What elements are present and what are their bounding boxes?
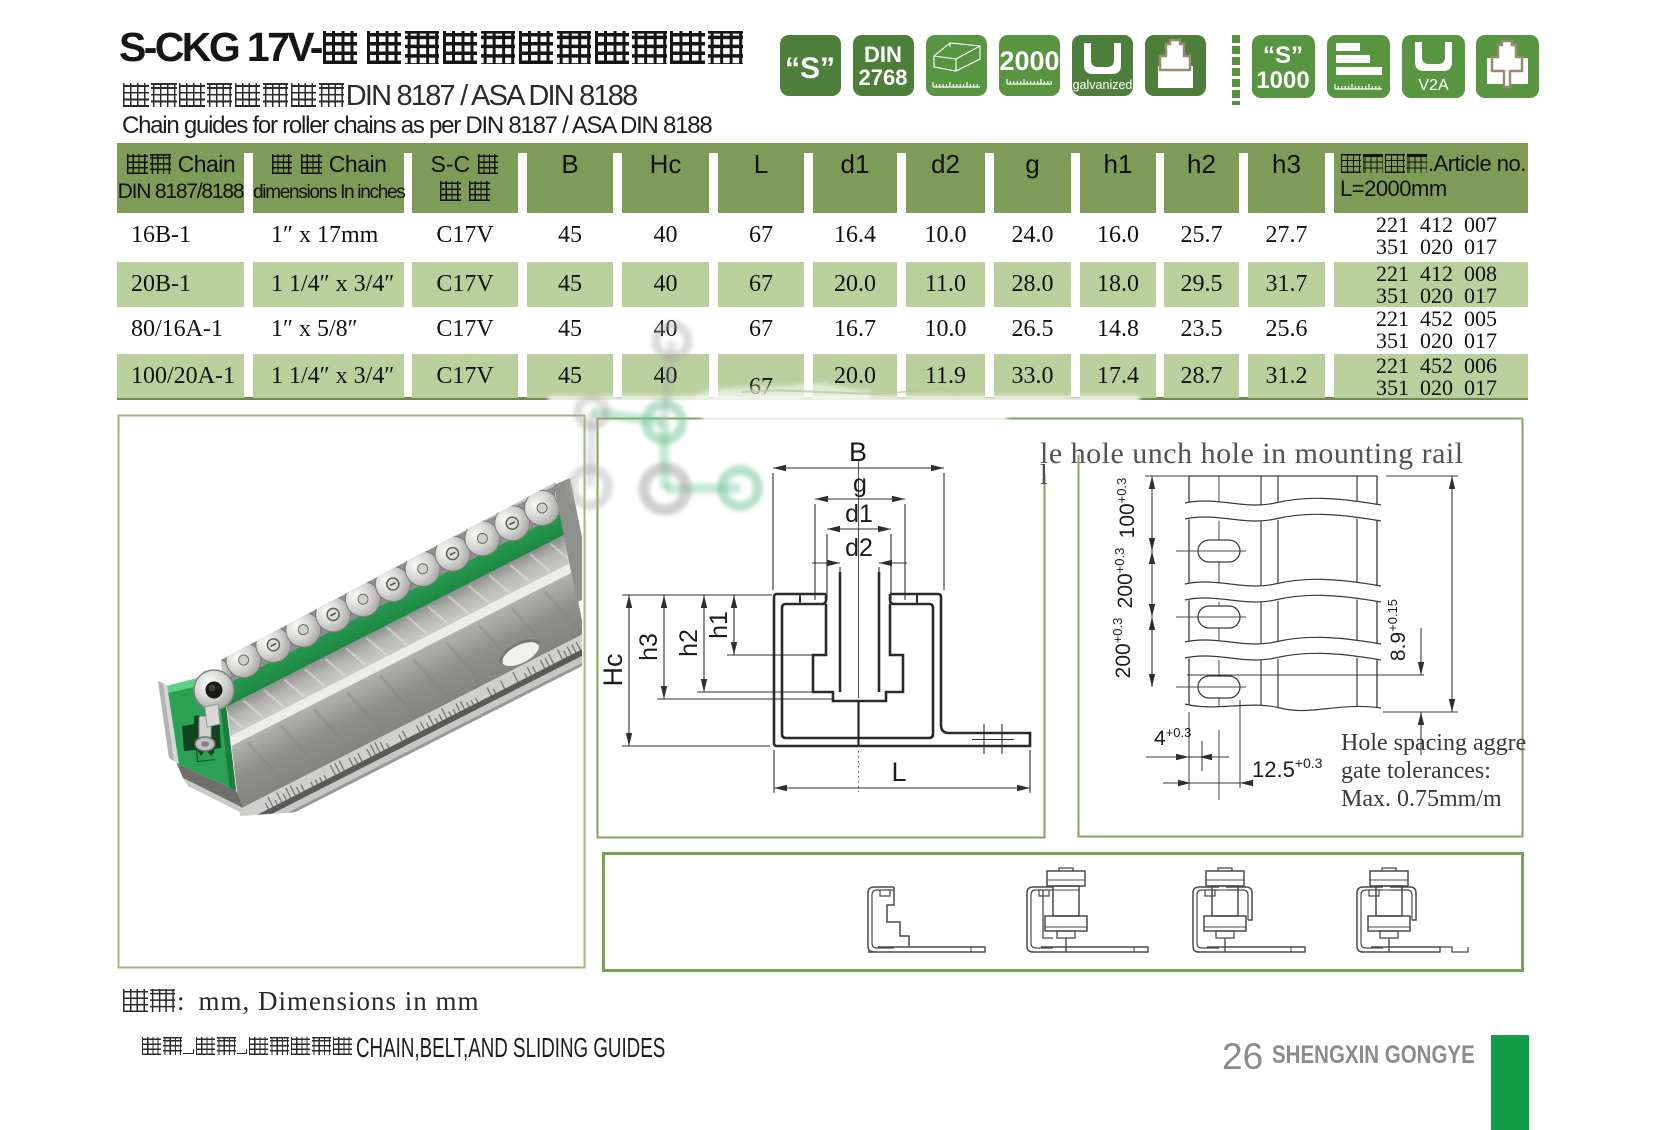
svg-text:g: g	[853, 470, 867, 498]
svg-text:h1: h1	[705, 611, 733, 639]
svg-text:1000: 1000	[1256, 67, 1309, 94]
svg-text:gate tolerances:: gate tolerances:	[1341, 758, 1491, 784]
svg-text:DIN: DIN	[864, 42, 902, 67]
svg-text:le hole unch hole in mounting: le hole unch hole in mounting rail	[1040, 437, 1464, 470]
svg-text:L: L	[891, 757, 906, 787]
svg-text:200+0.3: 200+0.3	[1112, 548, 1137, 609]
svg-text:V2A: V2A	[1418, 77, 1449, 94]
svg-text:l: l	[1040, 460, 1048, 491]
svg-text:2768: 2768	[859, 65, 908, 90]
svg-text:B: B	[849, 437, 867, 467]
svg-text:h2: h2	[675, 629, 703, 657]
svg-text:12.5+0.3: 12.5+0.3	[1252, 755, 1323, 782]
svg-text:“S”: “S”	[1263, 42, 1303, 69]
svg-text:“S”: “S”	[785, 52, 835, 85]
svg-text:Hc: Hc	[598, 654, 628, 687]
svg-text:d2: d2	[845, 534, 873, 562]
svg-text:Max. 0.75mm/m: Max. 0.75mm/m	[1341, 786, 1502, 812]
svg-text:2000: 2000	[999, 46, 1059, 76]
svg-text:8.9+0.15: 8.9+0.15	[1385, 599, 1410, 661]
svg-text:Hole spacing aggre: Hole spacing aggre	[1341, 730, 1526, 756]
svg-text:galvanized: galvanized	[1073, 78, 1133, 92]
svg-text:200+0.3: 200+0.3	[1110, 618, 1135, 679]
svg-text:4+0.3: 4+0.3	[1154, 725, 1191, 750]
svg-text:h3: h3	[635, 633, 663, 661]
svg-text:d1: d1	[845, 500, 873, 528]
svg-text:100+0.3: 100+0.3	[1114, 478, 1139, 539]
